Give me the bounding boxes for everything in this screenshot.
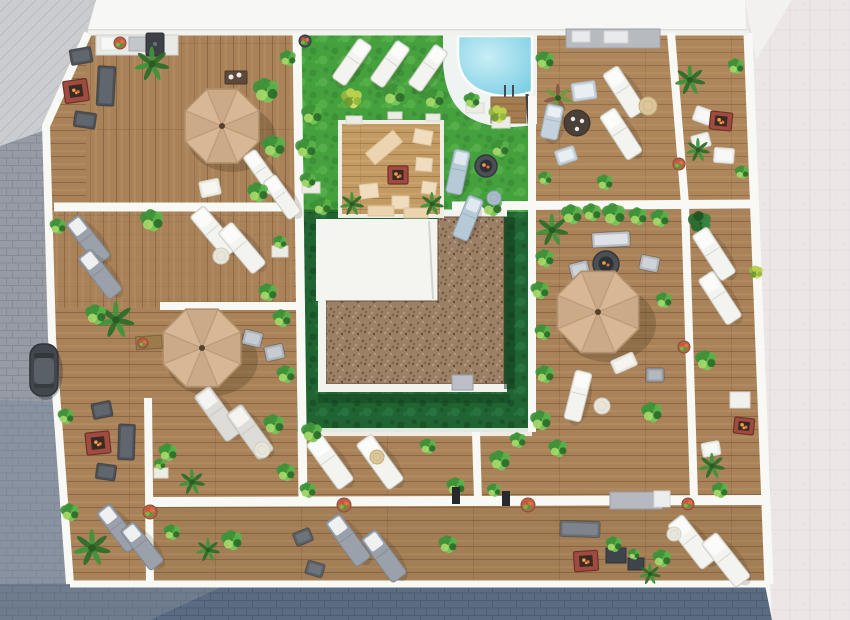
- grill-knob: [153, 42, 157, 46]
- counter-module: [129, 37, 146, 51]
- counter-module: [572, 31, 590, 42]
- armchair: [69, 46, 93, 66]
- pouf: [487, 191, 501, 205]
- flower-pot: [521, 498, 535, 512]
- lounge-mat: [368, 206, 394, 216]
- flower-pot: [143, 505, 157, 519]
- flower-pot: [673, 158, 685, 170]
- round-fire-table: [475, 155, 497, 177]
- counter-module: [604, 31, 628, 43]
- car-windshield: [34, 353, 54, 358]
- table-cup: [571, 117, 575, 121]
- car-roof: [34, 358, 54, 384]
- side-table: [646, 368, 664, 382]
- floor-cushion: [359, 183, 378, 199]
- lamp-post: [502, 491, 510, 506]
- sofa: [592, 231, 631, 248]
- pouf: [254, 442, 270, 458]
- armchair: [95, 463, 117, 482]
- armchair: [264, 343, 286, 362]
- table-plate: [229, 75, 234, 80]
- sofa: [96, 66, 116, 107]
- roof-skylight: [452, 375, 473, 390]
- pouf: [667, 527, 681, 541]
- flower-pot: [682, 498, 694, 510]
- storage-box: [730, 392, 750, 408]
- table-plate: [237, 73, 242, 78]
- lounge-mat: [404, 208, 428, 218]
- planter-pot: [299, 35, 311, 47]
- rooftop-terrace-render: [0, 0, 850, 620]
- table-cup: [575, 127, 579, 131]
- floor-cushion: [416, 157, 433, 171]
- planter-box: [426, 114, 440, 121]
- flower-pot: [337, 498, 351, 512]
- parasol: [557, 271, 638, 352]
- armchair: [571, 80, 597, 101]
- parasol: [163, 309, 241, 387]
- floor-cushion: [413, 129, 433, 146]
- straw-pouf: [370, 450, 384, 464]
- counter-fridge: [654, 491, 670, 507]
- fire-table: [388, 166, 408, 184]
- building-shadow-right: [504, 217, 515, 389]
- fire-table: [573, 550, 598, 572]
- fire-table: [85, 431, 111, 455]
- armchair: [73, 111, 97, 130]
- building-roof-white: [316, 219, 438, 301]
- round-dining-table: [564, 110, 590, 136]
- floor-cushion: [392, 196, 409, 209]
- fire-table: [63, 78, 90, 103]
- armchair: [639, 254, 661, 273]
- armchair: [91, 400, 114, 420]
- building-shadow-bottom: [318, 394, 510, 403]
- planter-box: [388, 112, 402, 119]
- pouf: [213, 248, 229, 264]
- flower-pot: [114, 37, 126, 49]
- straw-pouf: [639, 97, 657, 115]
- sofa: [117, 424, 135, 461]
- parasol: [185, 89, 259, 163]
- planter-box: [346, 116, 362, 124]
- flower-pot: [138, 338, 148, 348]
- pouf: [594, 398, 610, 414]
- deck-bottom-tint: [150, 500, 769, 584]
- dining-table: [225, 71, 247, 84]
- armchair: [199, 178, 222, 198]
- fire-table: [709, 111, 733, 131]
- fire-table: [733, 417, 755, 435]
- lamp-post: [452, 487, 460, 504]
- armchair: [714, 147, 735, 163]
- neighbor-roof-band: [0, 0, 850, 34]
- car-rear-window: [34, 384, 54, 388]
- render-canvas: [0, 0, 850, 620]
- floor-cushion: [421, 181, 437, 195]
- flower-pot: [678, 341, 690, 353]
- wall-vertical-south-center: [476, 432, 478, 502]
- sofa: [560, 520, 601, 537]
- table-cup: [580, 119, 584, 123]
